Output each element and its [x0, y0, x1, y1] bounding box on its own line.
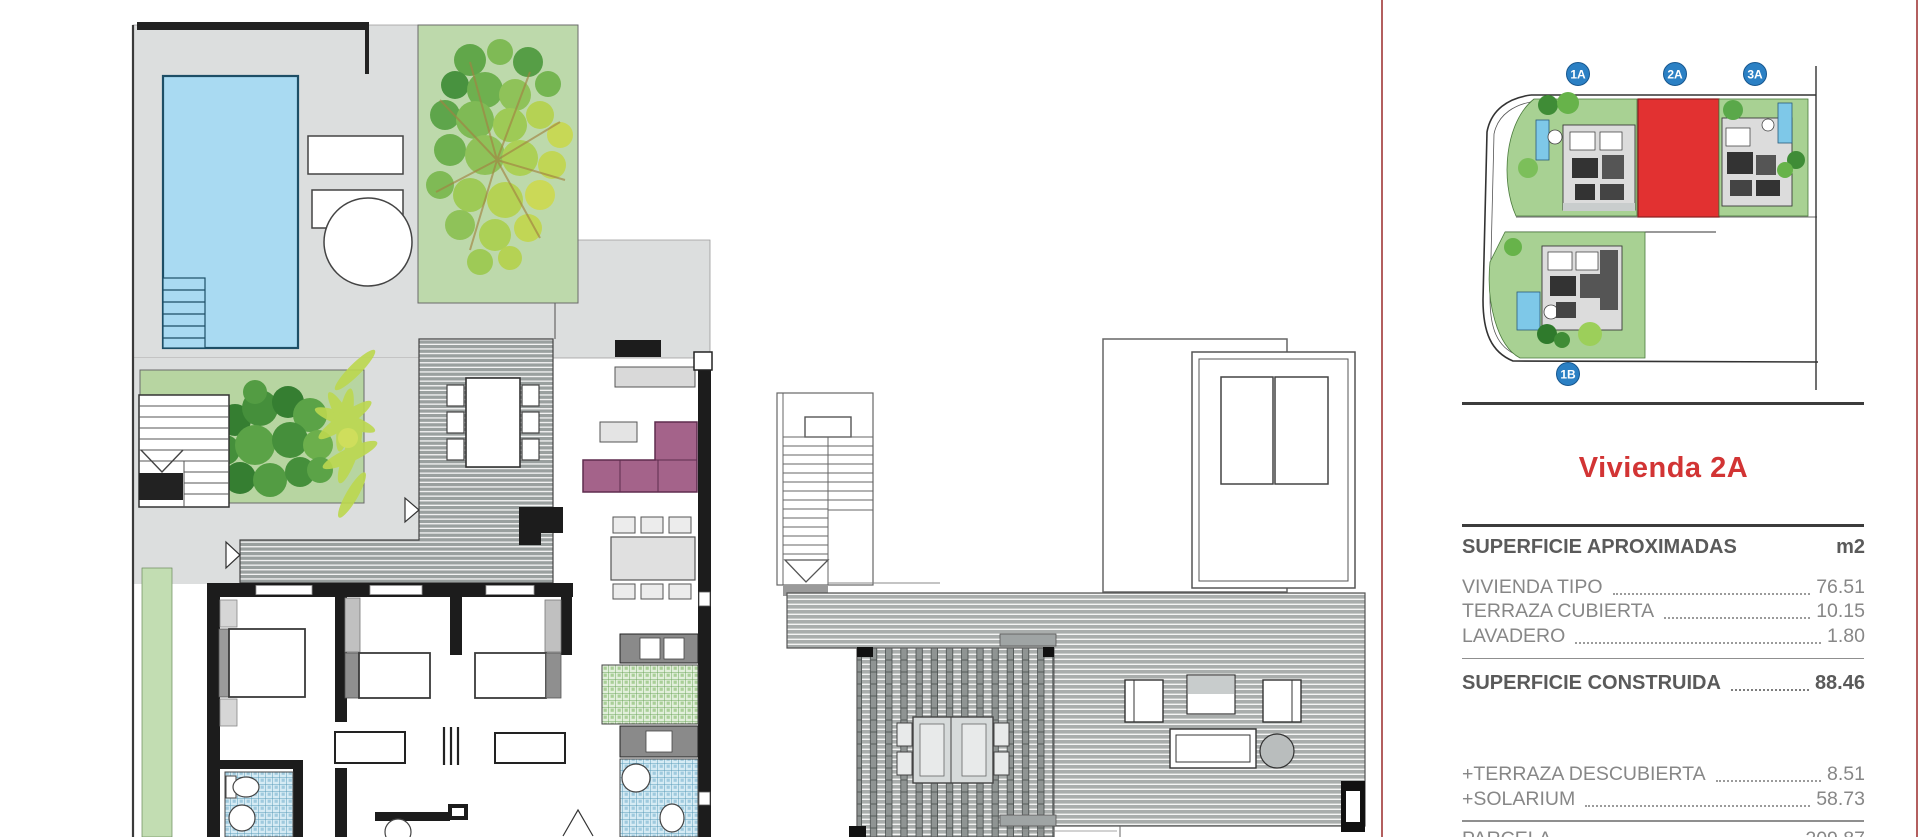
- floorplan-sheet: 1A 2A 3A 1B Vivienda 2A SUPERFICIE APROX…: [0, 0, 1920, 837]
- bedroom-2: [335, 598, 430, 763]
- area-row-parcela: PARCELA 209.87: [1462, 828, 1865, 837]
- row-label: VIVIENDA TIPO: [1462, 576, 1603, 599]
- sink: [385, 819, 411, 837]
- badge-2a: 2A: [1664, 63, 1687, 86]
- svg-text:2A: 2A: [1667, 68, 1683, 82]
- solarium-plan: [777, 339, 1365, 837]
- armchair: [1263, 680, 1301, 722]
- toilet: [660, 804, 684, 832]
- row-label: PARCELA: [1462, 828, 1552, 837]
- armchair: [1125, 680, 1163, 722]
- dotted-leader: [1731, 689, 1809, 691]
- dotted-leader: [1664, 617, 1810, 619]
- garden-stairs: [139, 395, 229, 507]
- area-row-terraza-descubierta: +TERRAZA DESCUBIERTA 8.51: [1462, 763, 1865, 786]
- dotted-leader: [1575, 642, 1821, 644]
- panel-border-right: [1916, 0, 1918, 837]
- bedroom-3: [475, 600, 565, 763]
- ground-floor-plan: [133, 22, 712, 837]
- area-row-superficie-construida: SUPERFICIE CONSTRUIDA 88.46: [1462, 672, 1865, 695]
- mini-pool: [1536, 120, 1549, 160]
- skylight: [1275, 377, 1328, 484]
- badge-3a: 3A: [1744, 63, 1767, 86]
- windows: [256, 586, 534, 595]
- lawn-strip: [142, 568, 172, 837]
- sideboard: [615, 367, 695, 387]
- dotted-leader: [1716, 780, 1821, 782]
- row-label: +TERRAZA DESCUBIERTA: [1462, 763, 1706, 786]
- row-value: 76.51: [1816, 576, 1865, 599]
- plan-drawings: 1A 2A 3A 1B: [0, 0, 1920, 837]
- row-value: 58.73: [1816, 788, 1865, 811]
- plot-1a: [1507, 92, 1637, 216]
- door-swing: [563, 810, 593, 836]
- area-row-solarium: +SOLARIUM 58.73: [1462, 788, 1865, 811]
- dotted-leader: [1613, 593, 1811, 595]
- area-row-terraza-cubierta: TERRAZA CUBIERTA 10.15: [1462, 600, 1865, 623]
- sliding-door: [444, 727, 458, 765]
- plot-1b: [1489, 232, 1645, 358]
- wall-pillar: [694, 352, 712, 370]
- plot-2a-highlight: [1638, 99, 1719, 217]
- row-label: TERRAZA CUBIERTA: [1462, 600, 1654, 623]
- area-row-vivienda-tipo: VIVIENDA TIPO 76.51: [1462, 576, 1865, 599]
- stairwell: [777, 393, 940, 596]
- badge-1b: 1B: [1557, 363, 1580, 386]
- plot-3a: [1719, 99, 1808, 216]
- bedroom-1: [219, 600, 305, 726]
- areas-header: SUPERFICIE APROXIMADAS m2: [1462, 536, 1865, 559]
- svg-text:3A: 3A: [1747, 68, 1763, 82]
- dotted-leader: [1585, 805, 1810, 807]
- tree-icon: [1538, 95, 1558, 115]
- row-value: 8.51: [1827, 763, 1865, 786]
- wall-top: [137, 22, 367, 30]
- coffee-table: [600, 422, 637, 442]
- row-value: 88.46: [1815, 672, 1865, 695]
- rooftop-structure: [1192, 352, 1355, 588]
- panel-border-left: [1381, 0, 1383, 837]
- row-label: LAVADERO: [1462, 625, 1565, 648]
- pool: [163, 76, 298, 348]
- tree-icon: [1723, 100, 1743, 120]
- bench: [335, 732, 405, 763]
- outdoor-dining-table: [447, 378, 539, 467]
- divider: [1462, 402, 1864, 405]
- divider: [1462, 820, 1864, 822]
- row-value: 209.87: [1805, 828, 1865, 837]
- page-title: Vivienda 2A: [1462, 452, 1865, 485]
- row-value: 10.15: [1816, 600, 1865, 623]
- sink: [229, 805, 255, 831]
- row-label: SUPERFICIE CONSTRUIDA: [1462, 672, 1721, 695]
- mini-pool: [1517, 292, 1540, 330]
- site-plan: 1A 2A 3A 1B: [1483, 63, 1818, 391]
- toilet: [233, 777, 259, 797]
- garden-tree-area: [418, 25, 578, 303]
- row-value: 1.80: [1827, 625, 1865, 648]
- svg-text:1A: 1A: [1570, 68, 1586, 82]
- badge-1a: 1A: [1567, 63, 1590, 86]
- bed: [475, 653, 546, 698]
- bed: [359, 653, 430, 698]
- bathroom-2: [620, 759, 698, 837]
- divider: [1462, 658, 1864, 660]
- service-column: [602, 634, 698, 837]
- mini-pool: [1778, 103, 1792, 143]
- living-room: [583, 367, 697, 599]
- shower: [602, 665, 698, 724]
- pergola-dining-set: [897, 717, 1009, 783]
- svg-text:1B: 1B: [1560, 368, 1576, 382]
- tree-icon: [1504, 238, 1522, 256]
- areas-header-unit: m2: [1836, 536, 1865, 559]
- bench: [495, 733, 565, 763]
- bathroom-1: [225, 772, 293, 837]
- bed: [229, 629, 305, 697]
- round-table: [324, 198, 412, 286]
- skylight: [1221, 377, 1273, 484]
- indoor-dining-set: [611, 517, 695, 599]
- area-row-lavadero: LAVADERO 1.80: [1462, 625, 1865, 648]
- pergola: [849, 634, 1056, 837]
- areas-header-label: SUPERFICIE APROXIMADAS: [1462, 536, 1737, 559]
- sink: [622, 764, 650, 792]
- row-label: +SOLARIUM: [1462, 788, 1575, 811]
- divider: [1462, 524, 1864, 527]
- side-table: [1260, 734, 1294, 768]
